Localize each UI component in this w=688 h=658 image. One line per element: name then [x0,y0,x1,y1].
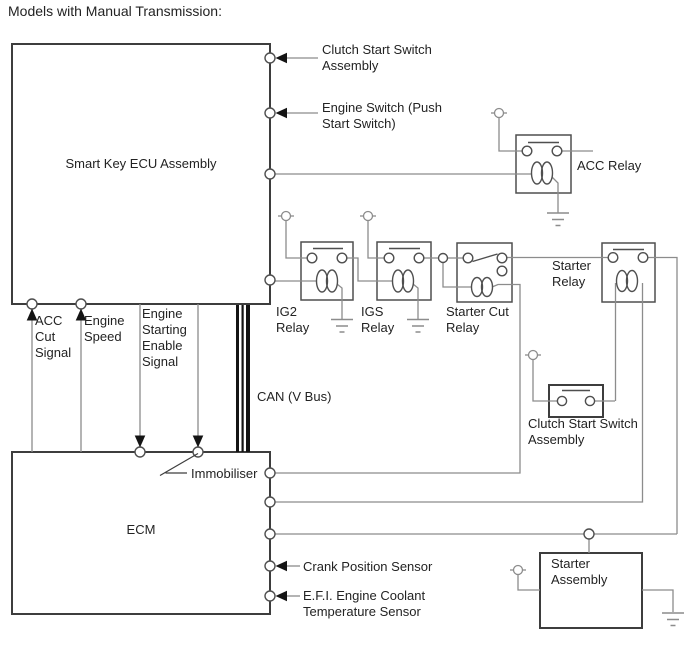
clutch-start-switch-top-label: Clutch Start Switch Assembly [322,42,432,74]
junction-terminal [584,529,594,539]
engine-switch-label: Engine Switch (Push Start Switch) [322,100,442,132]
connector-terminal [265,468,275,478]
ground-icon [662,613,684,626]
starter-assembly-label: Starter Assembly [551,556,607,588]
power-source-icon [514,566,523,575]
arrow-left-icon [276,53,288,64]
can-bus-lines [236,305,250,452]
smart-key-ecu-box [12,44,270,304]
ground-icon [407,320,429,333]
connector-terminal [76,299,86,309]
connector-terminal [135,447,145,457]
connector-terminal [265,108,275,118]
engine-speed-label: Engine Speed [84,313,124,345]
power-symbols [282,109,538,575]
connector-terminal [265,497,275,507]
immobiliser-label: Immobiliser [191,466,257,482]
wire-starter-assembly-ground [642,590,673,612]
diagram-title: Models with Manual Transmission: [8,3,222,19]
ig2-relay-box [301,242,353,300]
crank-position-sensor-label: Crank Position Sensor [303,559,432,575]
arrow-down-icon [193,436,204,448]
ecm-label: ECM [12,522,270,538]
connector-terminal [265,275,275,285]
starter-cut-relay-label: Starter Cut Relay [446,304,509,336]
relay-terminals [307,146,648,539]
arrow-left-icon [276,561,288,572]
connector-terminal [265,561,275,571]
starter-relay-label: Starter Relay [552,258,591,290]
connector-terminal [265,591,275,601]
power-source-icon [529,351,538,360]
arrow-down-icon [135,436,146,448]
connector-terminal [27,299,37,309]
ground-icon [547,213,569,226]
acc-cut-signal-label: ACC Cut Signal [35,313,71,361]
power-source-icon [495,109,504,118]
ig2-relay-label: IG2 Relay [276,304,309,336]
acc-relay-label: ACC Relay [577,158,641,174]
arrow-left-icon [276,108,288,119]
junction-terminal [439,254,448,263]
wire-starter-assembly-power [518,575,540,591]
arrow-left-icon [276,591,288,602]
engine-starting-enable-label: Engine Starting Enable Signal [142,306,187,370]
power-source-icon [364,212,373,221]
efi-coolant-sensor-label: E.F.I. Engine Coolant Temperature Sensor [303,588,425,620]
clutch-start-switch-mid-label: Clutch Start Switch Assembly [528,416,638,448]
wiring-diagram: Models with Manual Transmission: Smart K… [0,0,688,658]
smart-key-ecu-label: Smart Key ECU Assembly [12,156,270,172]
can-bus-label: CAN (V Bus) [257,389,331,405]
power-source-icon [282,212,291,221]
connector-terminal [265,53,275,63]
igs-relay-box [377,242,431,300]
igs-relay-label: IGS Relay [361,304,394,336]
ground-icon [331,320,353,333]
